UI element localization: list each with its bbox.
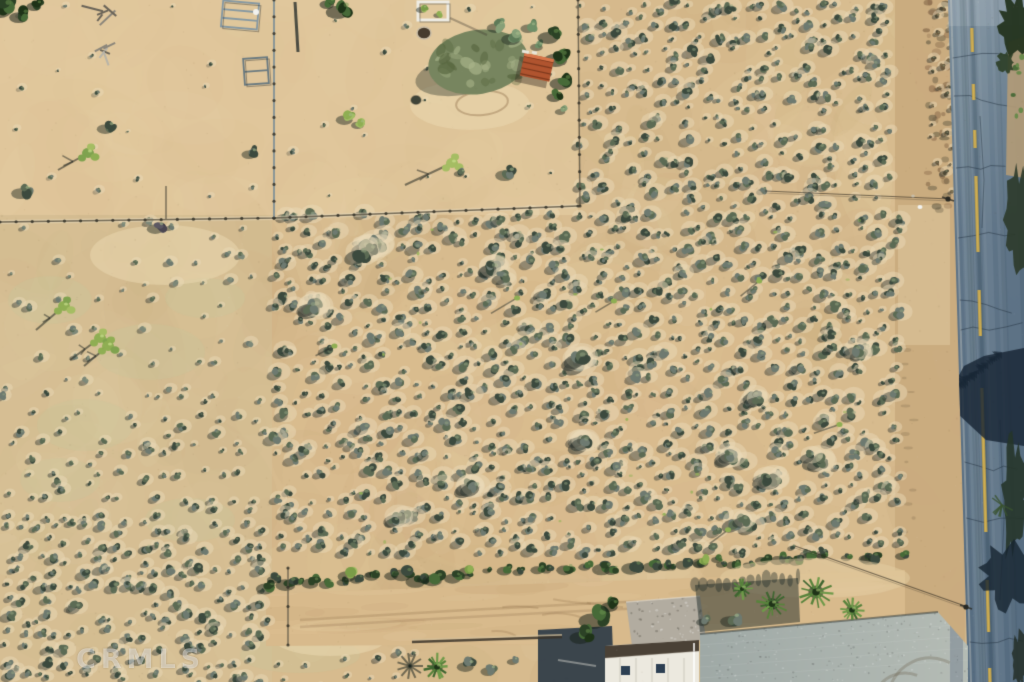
aerial-photo: CRMLS	[0, 0, 1024, 682]
aerial-photo-canvas	[0, 0, 1024, 682]
